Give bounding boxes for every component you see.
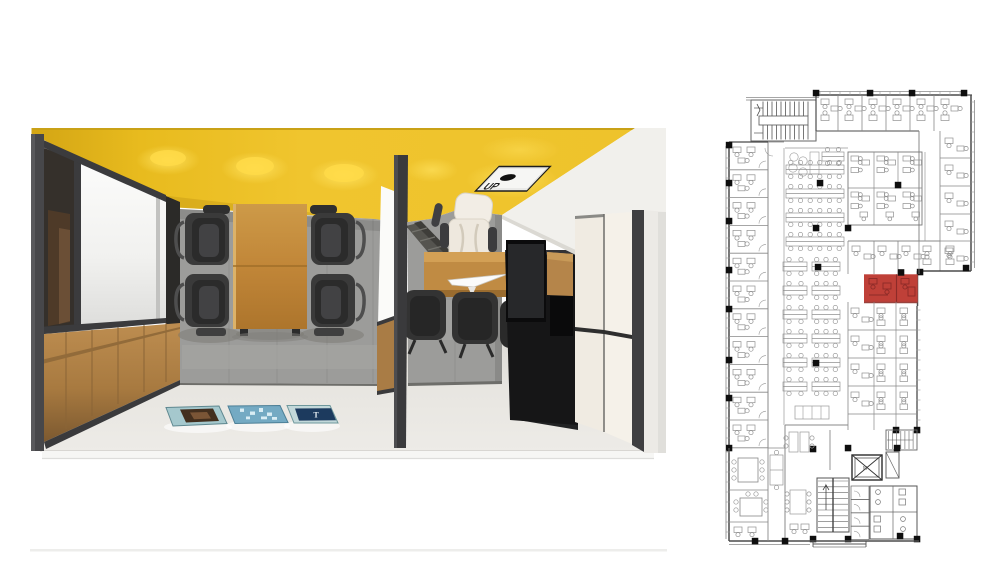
svg-text:M: M xyxy=(863,466,867,472)
svg-text:T: T xyxy=(313,411,319,420)
